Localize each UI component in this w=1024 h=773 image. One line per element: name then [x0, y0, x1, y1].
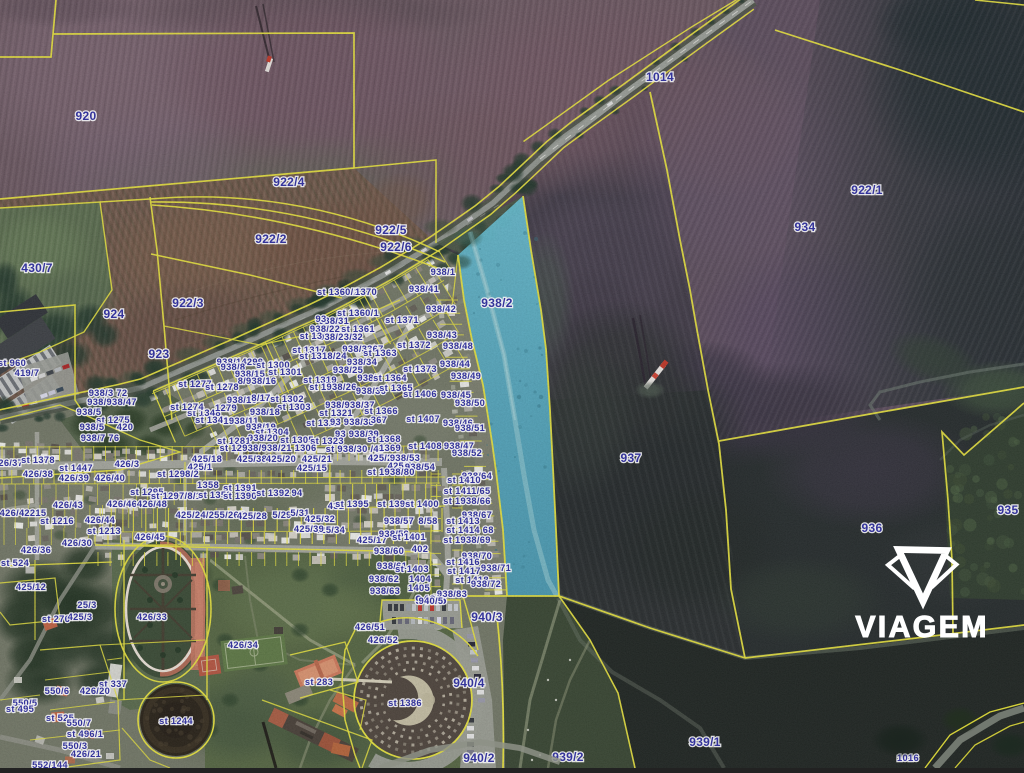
svg-text:st 1216: st 1216	[40, 516, 74, 526]
svg-text:426/33: 426/33	[137, 612, 167, 622]
svg-text:st 1400: st 1400	[405, 499, 439, 509]
svg-text:550/6: 550/6	[45, 686, 70, 696]
svg-text:938/63: 938/63	[370, 586, 400, 596]
svg-text:938/1: 938/1	[431, 267, 456, 277]
svg-text:1014: 1014	[646, 70, 674, 84]
svg-text:938/51: 938/51	[455, 423, 485, 433]
svg-text:550/7: 550/7	[67, 718, 92, 728]
svg-text:425/39: 425/39	[294, 524, 324, 534]
svg-text:938/7 76: 938/7 76	[81, 433, 120, 443]
svg-text:425/28: 425/28	[237, 511, 267, 521]
svg-text:938/52: 938/52	[452, 448, 482, 458]
svg-text:st 1401: st 1401	[392, 532, 426, 542]
svg-text:923: 923	[149, 347, 170, 361]
svg-text:st 1938/66: st 1938/66	[443, 496, 490, 506]
svg-text:940/2: 940/2	[463, 751, 495, 765]
svg-text:st 1364: st 1364	[373, 373, 407, 383]
svg-text:st 1410: st 1410	[447, 475, 481, 485]
svg-text:st 524: st 524	[1, 558, 30, 568]
svg-text:st 1938/69: st 1938/69	[443, 535, 490, 545]
svg-text:426/21: 426/21	[71, 749, 101, 759]
svg-text:1405: 1405	[408, 583, 430, 593]
svg-text:425/12: 425/12	[16, 582, 46, 592]
svg-text:426/38: 426/38	[23, 469, 53, 479]
svg-text:938/62: 938/62	[369, 574, 399, 584]
svg-text:922/4: 922/4	[273, 175, 305, 189]
svg-text:940/4: 940/4	[453, 676, 485, 690]
svg-text:938/43: 938/43	[427, 330, 457, 340]
svg-text:939/1: 939/1	[689, 735, 721, 749]
svg-text:426/48: 426/48	[137, 499, 167, 509]
svg-text:938/48: 938/48	[443, 341, 473, 351]
svg-text:425/32: 425/32	[305, 514, 335, 524]
svg-text:938/44: 938/44	[440, 359, 471, 369]
svg-text:25/3: 25/3	[77, 600, 96, 610]
svg-text:st 283: st 283	[305, 677, 333, 687]
svg-text:st 1390: st 1390	[223, 491, 257, 501]
svg-text:426/39: 426/39	[59, 473, 89, 483]
svg-text:1369: 1369	[379, 443, 401, 453]
svg-text:8/17: 8/17	[251, 393, 270, 403]
svg-text:426/52: 426/52	[368, 635, 398, 645]
svg-text:st 1411/65: st 1411/65	[444, 486, 491, 496]
svg-text:938/71: 938/71	[481, 563, 511, 573]
svg-text:st 1278: st 1278	[205, 382, 239, 392]
svg-text:1370: 1370	[355, 287, 377, 297]
svg-text:st 1274: st 1274	[170, 402, 204, 412]
svg-text:425/3: 425/3	[68, 612, 93, 622]
svg-text:938/23/32: 938/23/32	[319, 332, 363, 342]
svg-text:426/46: 426/46	[107, 499, 137, 509]
svg-text:922/1: 922/1	[851, 183, 883, 197]
svg-text:425/20: 425/20	[266, 454, 296, 464]
svg-text:VIAGEM: VIAGEM	[855, 610, 989, 644]
svg-text:426/44: 426/44	[85, 515, 116, 525]
svg-text:430/7: 430/7	[21, 261, 53, 275]
svg-text:st 1365: st 1365	[379, 383, 413, 393]
svg-text:st 495: st 495	[6, 704, 34, 714]
svg-text:st 1408: st 1408	[408, 441, 442, 451]
svg-text:426/37: 426/37	[0, 458, 23, 468]
svg-text:922/6: 922/6	[380, 240, 412, 254]
svg-text:st 938/30 /40: st 938/30 /40	[326, 444, 385, 454]
svg-text:934: 934	[795, 220, 816, 234]
svg-text:938/5: 938/5	[80, 422, 105, 432]
svg-text:st 1303: st 1303	[277, 402, 311, 412]
svg-text:st 1372: st 1372	[397, 340, 431, 350]
svg-text:st 276: st 276	[42, 614, 70, 624]
svg-text:st 13: st 13	[300, 331, 323, 341]
svg-text:st 1244: st 1244	[159, 716, 193, 726]
svg-text:922/5: 922/5	[375, 223, 407, 237]
svg-text:402: 402	[412, 544, 428, 554]
svg-text:1358: 1358	[197, 480, 219, 490]
svg-text:938/57: 938/57	[384, 516, 414, 526]
svg-text:938/72: 938/72	[471, 579, 501, 589]
svg-text:8/58: 8/58	[418, 516, 437, 526]
svg-text:426/43: 426/43	[53, 500, 83, 510]
svg-text:426/51: 426/51	[355, 622, 385, 632]
svg-text:st 1938/80: st 1938/80	[367, 467, 414, 477]
svg-text:st 1213: st 1213	[87, 526, 121, 536]
svg-text:st 1386: st 1386	[388, 698, 422, 708]
svg-text:93: 93	[316, 314, 327, 324]
svg-text:425/15: 425/15	[297, 463, 327, 473]
svg-text:924: 924	[104, 307, 125, 321]
svg-text:st 1360/2: st 1360/2	[317, 287, 359, 297]
svg-text:938/41: 938/41	[409, 284, 439, 294]
svg-text:st 1395: st 1395	[335, 499, 369, 509]
svg-text:938/50: 938/50	[455, 398, 485, 408]
svg-text:920: 920	[76, 109, 97, 123]
svg-text:426/36: 426/36	[21, 545, 51, 555]
svg-text:552/144: 552/144	[32, 760, 68, 768]
svg-text:367: 367	[371, 415, 387, 425]
svg-text:938/20: 938/20	[248, 433, 278, 443]
svg-text:st 1373: st 1373	[403, 364, 437, 374]
svg-text:936: 936	[862, 521, 883, 535]
svg-text:425/24/255/265: 425/24/255/265	[176, 510, 245, 520]
svg-text:938/2: 938/2	[481, 296, 513, 310]
svg-text:1279: 1279	[215, 403, 237, 413]
svg-text:8/938/16: 8/938/16	[238, 376, 277, 386]
svg-text:426/34: 426/34	[228, 640, 259, 650]
svg-text:st 1447: st 1447	[59, 463, 93, 473]
svg-text:426/45: 426/45	[135, 532, 165, 542]
svg-text:st 960: st 960	[0, 358, 26, 368]
svg-text:938/938/47: 938/938/47	[87, 397, 137, 407]
svg-text:st 1403: st 1403	[395, 564, 429, 574]
svg-text:st 496/1: st 496/1	[67, 729, 104, 739]
svg-text:5/29: 5/29	[272, 510, 291, 520]
svg-text:937: 937	[621, 451, 642, 465]
svg-text:st 12938/938/21 1306: st 12938/938/21 1306	[220, 443, 317, 453]
svg-text:938/49: 938/49	[451, 371, 481, 381]
svg-text:426/30: 426/30	[62, 538, 92, 548]
svg-text:940/5: 940/5	[419, 596, 444, 606]
svg-text:st 1938/26: st 1938/26	[309, 382, 356, 392]
svg-text:st 1298/2: st 1298/2	[157, 469, 199, 479]
svg-text:st 1318/24: st 1318/24	[299, 351, 347, 361]
svg-text:935: 935	[998, 503, 1019, 517]
svg-text:426/20: 426/20	[80, 686, 110, 696]
svg-text:425/38: 425/38	[237, 454, 267, 464]
svg-text:426/40: 426/40	[95, 473, 125, 483]
svg-text:st 1414 68: st 1414 68	[446, 525, 493, 535]
svg-text:st 1371: st 1371	[385, 315, 419, 325]
svg-text:938/42: 938/42	[426, 304, 456, 314]
svg-text:940/3: 940/3	[471, 610, 503, 624]
svg-text:st 1407: st 1407	[406, 414, 440, 424]
svg-text:st 1392: st 1392	[256, 488, 290, 498]
svg-text:938/60: 938/60	[374, 546, 404, 556]
svg-text:922/2: 922/2	[255, 232, 287, 246]
svg-text:922/3: 922/3	[172, 296, 204, 310]
svg-text:426/3: 426/3	[115, 459, 140, 469]
svg-text:st 1378: st 1378	[21, 455, 55, 465]
svg-text:420: 420	[117, 422, 133, 432]
svg-text:93 938/38: 93 938/38	[330, 417, 374, 427]
svg-text:94: 94	[292, 488, 303, 498]
svg-text:419/7: 419/7	[15, 368, 40, 378]
